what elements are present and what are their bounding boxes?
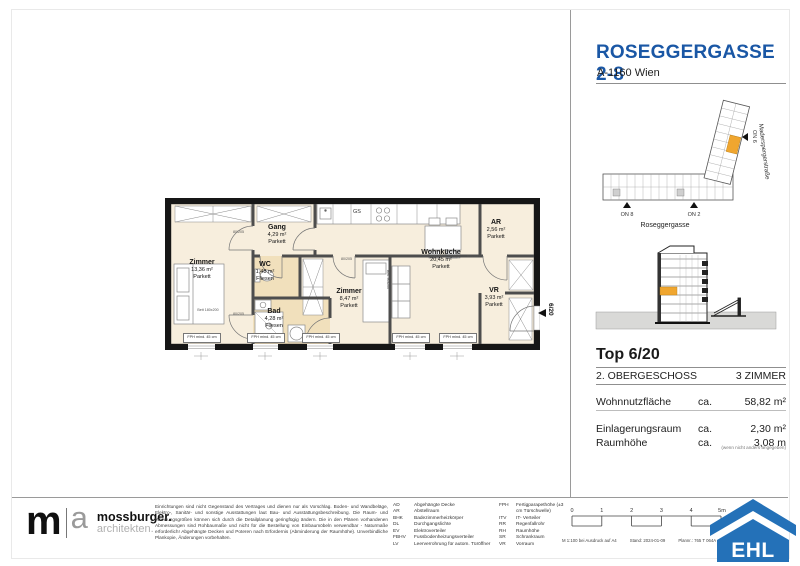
print-scale-note: M 1:100 bei Ausdruck auf A4 (562, 538, 617, 543)
page-title: ROSEGGERGASSE 2-8 (596, 42, 788, 86)
metric-value: 58,82 m² (728, 396, 786, 408)
page-subtitle: A-1160 Wien (597, 67, 660, 79)
room-name: Zimmer (171, 259, 233, 267)
sidebar-divider (570, 10, 571, 497)
room-label-vr: VR 3,93 m² Parkett (466, 287, 522, 308)
architect-logo: m a mossburger. architekten. (26, 506, 172, 538)
scale-tick: 3 (660, 508, 663, 514)
print-date: Stand: 2024-01-09 (630, 538, 666, 543)
footer-divider (12, 497, 788, 498)
roof (658, 246, 694, 253)
room-finish: Parkett (466, 302, 522, 308)
entrance-arrow-icon (538, 309, 546, 317)
height-note: (wenn nicht anders angegeben) (596, 445, 786, 450)
abbr-label: Vorraum (516, 542, 568, 548)
on6-label: ON 6 (751, 130, 757, 143)
on8-marker-icon (623, 202, 631, 208)
room-label-gang: Gang 4,29 m² Parkett (246, 224, 308, 245)
door-size-label: 80/205 (341, 257, 352, 261)
ehl-logo: EHL (710, 498, 796, 562)
unit-number: 6/20 (547, 303, 554, 316)
building-section (655, 246, 710, 323)
metric-row-living-area: Wohnnutzfläche ca. 58,82 m² (596, 396, 786, 408)
scale-tick: 1 (600, 508, 603, 514)
floor-label: 2. OBERGESCHOSS (596, 370, 697, 382)
room-name: Gang (246, 224, 308, 232)
metric-prefix: ca. (698, 396, 728, 408)
metric-prefix: ca. (698, 423, 728, 435)
unit-entrance-marker: 6/20 (538, 303, 554, 317)
abbr-label: Fertigparapethöhe (±3 cm Türschwelle) (516, 503, 568, 516)
abbr-label: Leerverrohrung für autom. Türöffner (414, 542, 490, 548)
scale-tick: 2 (630, 508, 633, 514)
window-sill-label: FPH mind. 45 cm (392, 333, 430, 343)
metric-label: Einlagerungsraum (596, 423, 698, 435)
dimension-ticks (194, 352, 464, 360)
room-label-wc: WC 1,48 m² Fliesen (237, 261, 293, 282)
logo-m: m (26, 506, 62, 536)
abbr-key: LV (393, 542, 414, 548)
window-sill-label: FPH mind. 45 cm (183, 333, 221, 343)
building-right-wing (704, 100, 750, 184)
ehl-brand-text: EHL (731, 539, 775, 562)
scale-tick: 0 (570, 508, 573, 514)
room-label-bad: Bad 4,28 m² Fliesen (243, 308, 305, 329)
bed-large-label: Bett 180x200 (186, 308, 230, 312)
room-name: VR (466, 287, 522, 295)
metric-label: Wohnnutzfläche (596, 396, 698, 408)
door-size-label: 80/205 (233, 230, 244, 234)
metric-value: 2,30 m² (728, 423, 786, 435)
bed-small-label: Bett 90x200 (386, 270, 390, 289)
door-size-label: 80/205 (467, 254, 478, 258)
room-finish: Parkett (317, 303, 381, 309)
abbr-key: FPH (499, 503, 516, 516)
window-sill-label: FPH mind. 45 cm (439, 333, 477, 343)
room-label-wohnkueche: Wohnküche 20,45 m² Parkett (405, 249, 477, 270)
room-label-zimmer-2: Zimmer 8,47 m² Parkett (317, 288, 381, 309)
window-sill-label: FPH mind. 45 cm (302, 333, 340, 343)
highlighted-floor (660, 287, 677, 295)
rule (596, 410, 786, 411)
scale-bar: 0 1 2 3 4 5m (566, 506, 728, 534)
room-finish: Parkett (468, 234, 524, 240)
room-name: WC (237, 261, 293, 269)
room-label-zimmer-1: Zimmer 13,36 m² Parkett (171, 259, 233, 280)
room-name: Bad (243, 308, 305, 316)
room-name: Zimmer (317, 288, 381, 296)
room-finish: Fliesen (237, 276, 293, 282)
rule (596, 367, 786, 368)
floor-rooms-row: 2. OBERGESCHOSS 3 ZIMMER (596, 370, 786, 382)
on2-label: ON 2 (688, 212, 701, 218)
street-right-label: Maderspergerstraße (757, 123, 771, 180)
logo-a: a (71, 506, 88, 531)
section-drawing (592, 243, 780, 335)
room-finish: Parkett (246, 239, 308, 245)
on2-marker-icon (690, 202, 698, 208)
metric-row-storage: Einlagerungsraum ca. 2,30 m² (596, 423, 786, 435)
door-size-label: 80/205 (233, 312, 244, 316)
scale-tick: 4 (690, 508, 693, 514)
sofa (392, 266, 410, 318)
room-name: AR (468, 219, 524, 227)
dishwasher-label: GS (353, 209, 361, 215)
street-bottom-label: Roseggergasse (640, 222, 689, 229)
rooms-label: 3 ZIMMER (736, 370, 786, 382)
logo-divider (66, 508, 67, 538)
abbr-key: VR (499, 542, 516, 548)
room-finish: Fliesen (243, 323, 305, 329)
room-finish: Parkett (171, 274, 233, 280)
print-info: M 1:100 bei Ausdruck auf A4 Stand: 2024-… (562, 538, 716, 543)
abbreviation-legend-left: ADAbgehängte Decke ARAbstellraum BHKBade… (393, 503, 493, 548)
site-plan: ON 6 Maderspergerstraße ON 8 ON 2 Rosegg… (585, 90, 790, 230)
on8-label: ON 8 (621, 212, 634, 218)
window-sill-label: FPH mind. 45 cm (247, 333, 285, 343)
room-finish: Parkett (405, 264, 477, 270)
rule (596, 384, 786, 385)
header-rule (596, 83, 786, 84)
legal-disclaimer: Einrichtungen sind nicht Gegenstand des … (155, 504, 388, 542)
unit-title: Top 6/20 (596, 346, 660, 364)
room-label-ar: AR 2,56 m² Parkett (468, 219, 524, 240)
abbreviation-legend-right: FPHFertigparapethöhe (±3 cm Türschwelle)… (499, 503, 569, 548)
